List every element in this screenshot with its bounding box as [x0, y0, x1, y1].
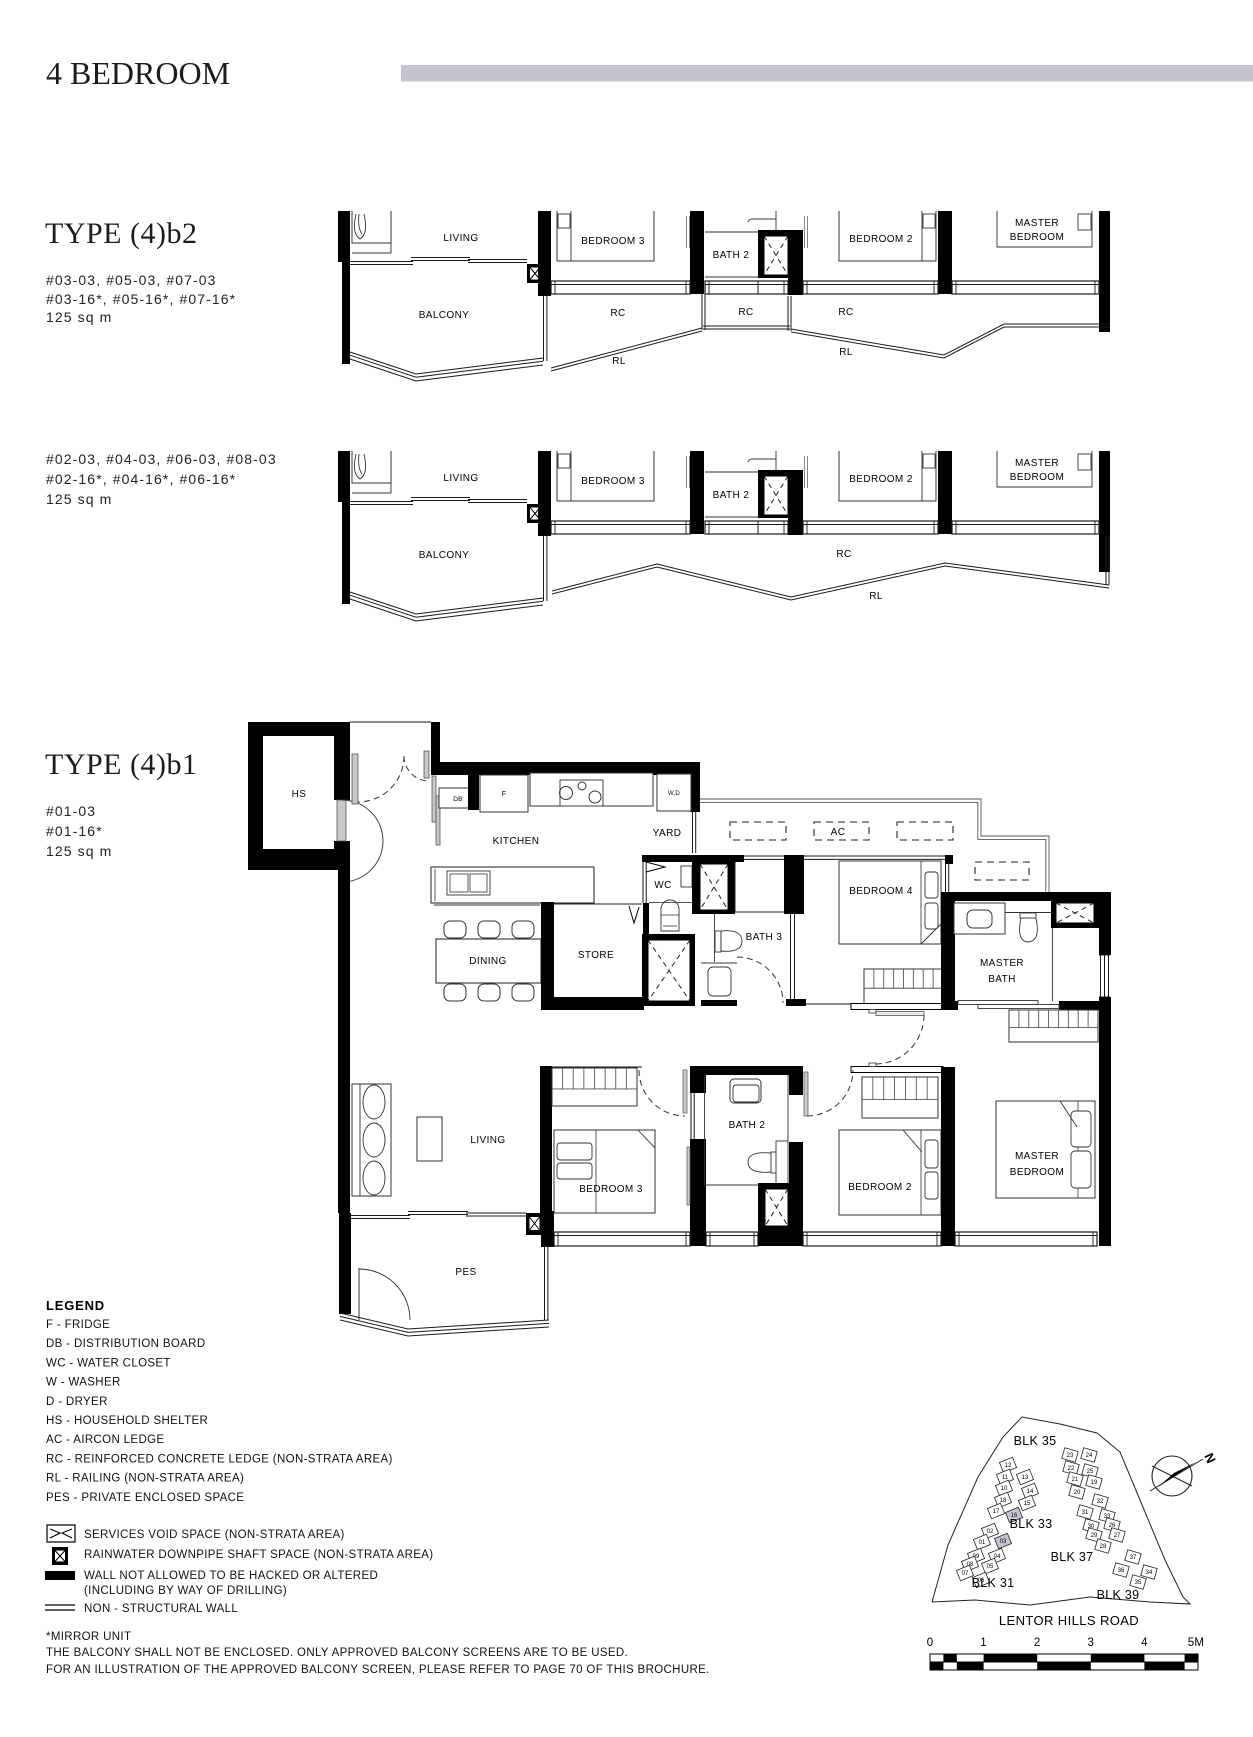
svg-text:AC: AC — [831, 827, 846, 838]
svg-text:W - WASHER: W - WASHER — [46, 1377, 121, 1389]
svg-text:4 BEDROOM: 4 BEDROOM — [46, 55, 230, 91]
svg-text:BEDROOM 3: BEDROOM 3 — [579, 1184, 643, 1195]
svg-text:17: 17 — [993, 1509, 1000, 1515]
svg-text:36: 36 — [1118, 1568, 1125, 1574]
svg-text:35: 35 — [1135, 1580, 1142, 1586]
svg-text:DINING: DINING — [469, 956, 506, 967]
svg-text:03: 03 — [1000, 1539, 1007, 1545]
svg-text:BEDROOM: BEDROOM — [1010, 232, 1064, 243]
svg-text:1: 1 — [980, 1637, 987, 1649]
svg-text:F - FRIDGE: F - FRIDGE — [46, 1319, 110, 1331]
svg-text:W,D: W,D — [668, 791, 680, 797]
svg-text:5M: 5M — [1188, 1637, 1204, 1649]
svg-text:NON - STRUCTURAL WALL: NON - STRUCTURAL WALL — [84, 1603, 238, 1615]
svg-text:RC: RC — [836, 549, 851, 560]
svg-text:#01-16*: #01-16* — [46, 823, 103, 839]
svg-text:29: 29 — [1091, 1533, 1098, 1539]
svg-text:BATH: BATH — [988, 974, 1016, 985]
svg-text:PES - PRIVATE ENCLOSED SPACE: PES - PRIVATE ENCLOSED SPACE — [46, 1492, 244, 1504]
svg-text:24: 24 — [1086, 1453, 1093, 1459]
svg-text:(INCLUDING BY WAY OF DRILLING): (INCLUDING BY WAY OF DRILLING) — [84, 1585, 287, 1597]
svg-text:37: 37 — [1130, 1555, 1137, 1561]
svg-text:WC: WC — [654, 880, 671, 891]
svg-text:F: F — [502, 791, 506, 798]
svg-text:#02-16*, #04-16*, #06-16*: #02-16*, #04-16*, #06-16* — [46, 471, 236, 487]
svg-text:FOR AN ILLUSTRATION OF THE APP: FOR AN ILLUSTRATION OF THE APPROVED BALC… — [46, 1664, 710, 1676]
svg-text:SERVICES VOID SPACE (NON-STRAT: SERVICES VOID SPACE (NON-STRATA AREA) — [84, 1529, 345, 1541]
svg-text:TYPE (4)b2: TYPE (4)b2 — [45, 217, 197, 250]
svg-text:TYPE (4)b1: TYPE (4)b1 — [45, 748, 197, 781]
svg-text:34: 34 — [1146, 1570, 1153, 1576]
svg-text:125 sq m: 125 sq m — [46, 843, 112, 859]
svg-text:125 sq m: 125 sq m — [46, 491, 112, 507]
svg-text:20: 20 — [1074, 1490, 1081, 1496]
svg-text:125 sq m: 125 sq m — [46, 309, 112, 325]
svg-text:BEDROOM: BEDROOM — [1010, 1167, 1064, 1178]
svg-text:LENTOR HILLS ROAD: LENTOR HILLS ROAD — [999, 1613, 1139, 1628]
svg-text:21: 21 — [1072, 1477, 1079, 1483]
svg-text:KITCHEN: KITCHEN — [493, 836, 540, 847]
svg-text:05: 05 — [987, 1564, 994, 1570]
svg-text:15: 15 — [1024, 1501, 1031, 1507]
svg-text:4: 4 — [1141, 1637, 1148, 1649]
svg-text:BEDROOM 2: BEDROOM 2 — [849, 234, 913, 245]
svg-text:RC: RC — [610, 308, 625, 319]
svg-text:27: 27 — [1114, 1533, 1121, 1539]
svg-text:HS - HOUSEHOLD SHELTER: HS - HOUSEHOLD SHELTER — [46, 1415, 208, 1427]
svg-text:LIVING: LIVING — [470, 1135, 505, 1146]
svg-text:BALCONY: BALCONY — [419, 310, 470, 321]
svg-text:01: 01 — [979, 1540, 986, 1546]
svg-text:25: 25 — [1087, 1469, 1094, 1475]
svg-text:LEGEND: LEGEND — [46, 1298, 105, 1313]
svg-text:BLK 39: BLK 39 — [1097, 1588, 1140, 1602]
svg-text:#03-03, #05-03, #07-03: #03-03, #05-03, #07-03 — [46, 272, 217, 288]
svg-text:#02-03, #04-03, #06-03, #08-03: #02-03, #04-03, #06-03, #08-03 — [46, 451, 277, 467]
svg-text:#03-16*, #05-16*, #07-16*: #03-16*, #05-16*, #07-16* — [46, 291, 236, 307]
svg-text:28: 28 — [1100, 1544, 1107, 1550]
svg-text:STORE: STORE — [578, 950, 614, 961]
svg-text:BLK 37: BLK 37 — [1051, 1550, 1094, 1564]
svg-text:#01-03: #01-03 — [46, 803, 96, 819]
svg-text:13: 13 — [1022, 1475, 1029, 1481]
svg-text:BEDROOM 4: BEDROOM 4 — [849, 886, 913, 897]
svg-text:07: 07 — [962, 1571, 969, 1577]
svg-text:YARD: YARD — [653, 828, 682, 839]
svg-text:THE BALCONY SHALL NOT BE ENCLO: THE BALCONY SHALL NOT BE ENCLOSED. ONLY … — [46, 1647, 628, 1659]
svg-text:HS: HS — [292, 789, 307, 800]
svg-text:14: 14 — [1027, 1489, 1034, 1495]
svg-text:3: 3 — [1087, 1637, 1094, 1649]
svg-text:PES: PES — [455, 1267, 476, 1278]
svg-text:*MIRROR UNIT: *MIRROR UNIT — [46, 1631, 131, 1643]
svg-text:RL: RL — [612, 356, 626, 367]
svg-text:RC: RC — [738, 307, 753, 318]
svg-text:32: 32 — [1097, 1499, 1104, 1505]
svg-text:10: 10 — [1001, 1486, 1008, 1492]
svg-text:RAINWATER DOWNPIPE SHAFT SPACE: RAINWATER DOWNPIPE SHAFT SPACE (NON-STRA… — [84, 1549, 433, 1561]
svg-text:RL: RL — [869, 591, 883, 602]
svg-text:RL - RAILING (NON-STRATA AREA): RL - RAILING (NON-STRATA AREA) — [46, 1473, 244, 1485]
svg-text:BATH 3: BATH 3 — [746, 932, 783, 943]
svg-text:WALL NOT ALLOWED TO BE HACKED: WALL NOT ALLOWED TO BE HACKED OR ALTERED — [84, 1570, 378, 1582]
svg-text:DB - DISTRIBUTION BOARD: DB - DISTRIBUTION BOARD — [46, 1338, 205, 1350]
svg-text:AC - AIRCON LEDGE: AC - AIRCON LEDGE — [46, 1434, 164, 1446]
svg-text:RC - REINFORCED CONCRETE LEDGE: RC - REINFORCED CONCRETE LEDGE (NON-STRA… — [46, 1453, 393, 1465]
svg-text:0: 0 — [927, 1637, 934, 1649]
svg-text:BATH 2: BATH 2 — [713, 250, 750, 261]
svg-text:31: 31 — [1082, 1510, 1089, 1516]
svg-text:MASTER: MASTER — [1015, 1151, 1059, 1162]
svg-text:BLK 31: BLK 31 — [972, 1576, 1015, 1590]
svg-text:MASTER: MASTER — [1015, 218, 1059, 229]
svg-text:BLK 35: BLK 35 — [1014, 1434, 1057, 1448]
svg-text:02: 02 — [987, 1529, 994, 1535]
svg-text:22: 22 — [1068, 1466, 1075, 1472]
svg-text:LIVING: LIVING — [443, 233, 478, 244]
svg-text:BATH 2: BATH 2 — [729, 1120, 766, 1131]
svg-text:RL: RL — [839, 347, 853, 358]
svg-text:WC - WATER CLOSET: WC - WATER CLOSET — [46, 1357, 171, 1369]
svg-text:BEDROOM 3: BEDROOM 3 — [581, 236, 645, 247]
svg-text:RC: RC — [838, 307, 853, 318]
svg-text:BLK 33: BLK 33 — [1010, 1517, 1053, 1531]
svg-text:BEDROOM 2: BEDROOM 2 — [848, 1182, 912, 1193]
svg-text:MASTER: MASTER — [980, 958, 1024, 969]
svg-text:2: 2 — [1034, 1637, 1041, 1649]
svg-text:D - DRYER: D - DRYER — [46, 1396, 108, 1408]
svg-text:19: 19 — [1091, 1480, 1098, 1486]
svg-text:12: 12 — [1005, 1463, 1012, 1469]
svg-text:23: 23 — [1067, 1453, 1074, 1459]
svg-text:DB: DB — [453, 796, 462, 803]
